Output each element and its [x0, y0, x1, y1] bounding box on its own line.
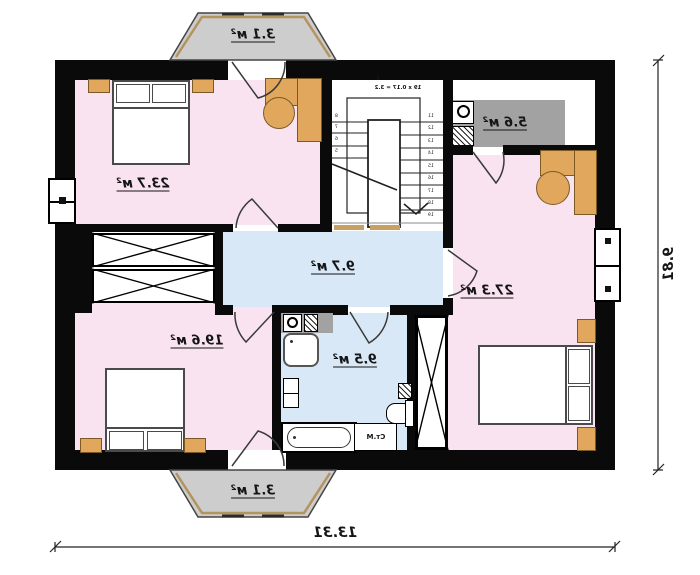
wall-bottom-right-seg [286, 450, 615, 470]
wall-stairs-right-lower [443, 298, 453, 315]
stairs-formula: 19 x 0.17 = 3.2 [375, 85, 422, 91]
step-number: 11 [428, 115, 434, 120]
bath-sink-icon [304, 314, 318, 332]
chair-top-left [263, 97, 295, 129]
chair-right [536, 171, 570, 205]
nightstand [184, 438, 206, 453]
bathtub [281, 422, 357, 453]
nightstand [192, 79, 214, 93]
dimension-width-label: 13.31 [313, 525, 357, 541]
nightstand [577, 319, 596, 343]
label-utility: 5.6 м² [483, 116, 527, 131]
desk-top-left-return [297, 78, 322, 142]
double-bed-bottom-left [105, 368, 185, 452]
wardrobe-left-bottom [92, 269, 215, 303]
radiator-icon [398, 383, 412, 399]
step-number: 8 [335, 115, 338, 120]
wall-bottom-left-seg [55, 450, 228, 470]
double-bed-right [478, 345, 593, 425]
step-number: 13 [428, 140, 434, 145]
washing-machine-label: Ст.М [366, 433, 385, 441]
nightstand [88, 79, 110, 93]
label-bedroom-bottom-left: 19.6 м² [171, 334, 224, 349]
wall-hall-left [215, 224, 223, 315]
bath-washer-icon [283, 314, 302, 332]
label-bedroom-top-left: 23.7 м² [117, 177, 170, 192]
wall-left [55, 60, 75, 470]
step-number: 16 [428, 177, 434, 182]
step-number: 19 [428, 214, 434, 219]
label-bathroom: 9.5 м² [333, 353, 377, 368]
dimension-height-label: 9.81 [661, 247, 677, 282]
stairs-level-mark: 2 [376, 75, 380, 82]
floor-plan: Ст.М [0, 0, 700, 575]
step-number: 12 [428, 127, 434, 132]
nightstand [80, 438, 102, 453]
step-number: 14 [428, 152, 434, 157]
wall-bedroomTL-bottom-a [75, 224, 233, 232]
wardrobe-right [415, 315, 448, 450]
step-number: 18 [428, 202, 434, 207]
utility-washer-icon [452, 126, 474, 146]
step-number: 15 [428, 165, 434, 170]
wall-hall-bottom-c [390, 305, 443, 315]
wall-utility-bottom-a [453, 145, 473, 155]
threshold-hall-to-right [443, 248, 453, 298]
label-hallway: 9.7 м² [311, 260, 355, 275]
label-balcony-bottom: 3.1 м² [231, 484, 275, 499]
washing-machine-box: Ст.М [354, 423, 397, 451]
wall-hall-bottom-a [215, 305, 233, 315]
wall-bath-left [272, 305, 281, 450]
wall-top-left-seg [55, 60, 228, 80]
step-number: 5 [335, 150, 338, 155]
window-left [48, 178, 76, 224]
step-number: 6 [335, 138, 338, 143]
label-bedroom-right: 27.3 м² [461, 284, 514, 299]
wall-bath-right [407, 305, 415, 450]
desk-right-return [574, 150, 597, 215]
step-number: 7 [335, 126, 338, 131]
wall-stairs-right [443, 80, 453, 248]
label-balcony-top: 3.1 м² [231, 28, 275, 43]
toilet-tank [405, 400, 414, 427]
window-right [594, 228, 621, 302]
shower-tray [283, 333, 319, 367]
double-bed-top-left [112, 80, 190, 165]
wall-bedroomTL-bottom-b [278, 224, 332, 232]
wall-pier-left [75, 224, 92, 313]
step-number: 17 [428, 190, 434, 195]
nightstand [577, 427, 596, 451]
wall-top-right-seg [286, 60, 615, 80]
bath-cabinet [283, 378, 299, 408]
utility-sink-icon [452, 101, 474, 124]
wardrobe-left-top [92, 233, 215, 267]
